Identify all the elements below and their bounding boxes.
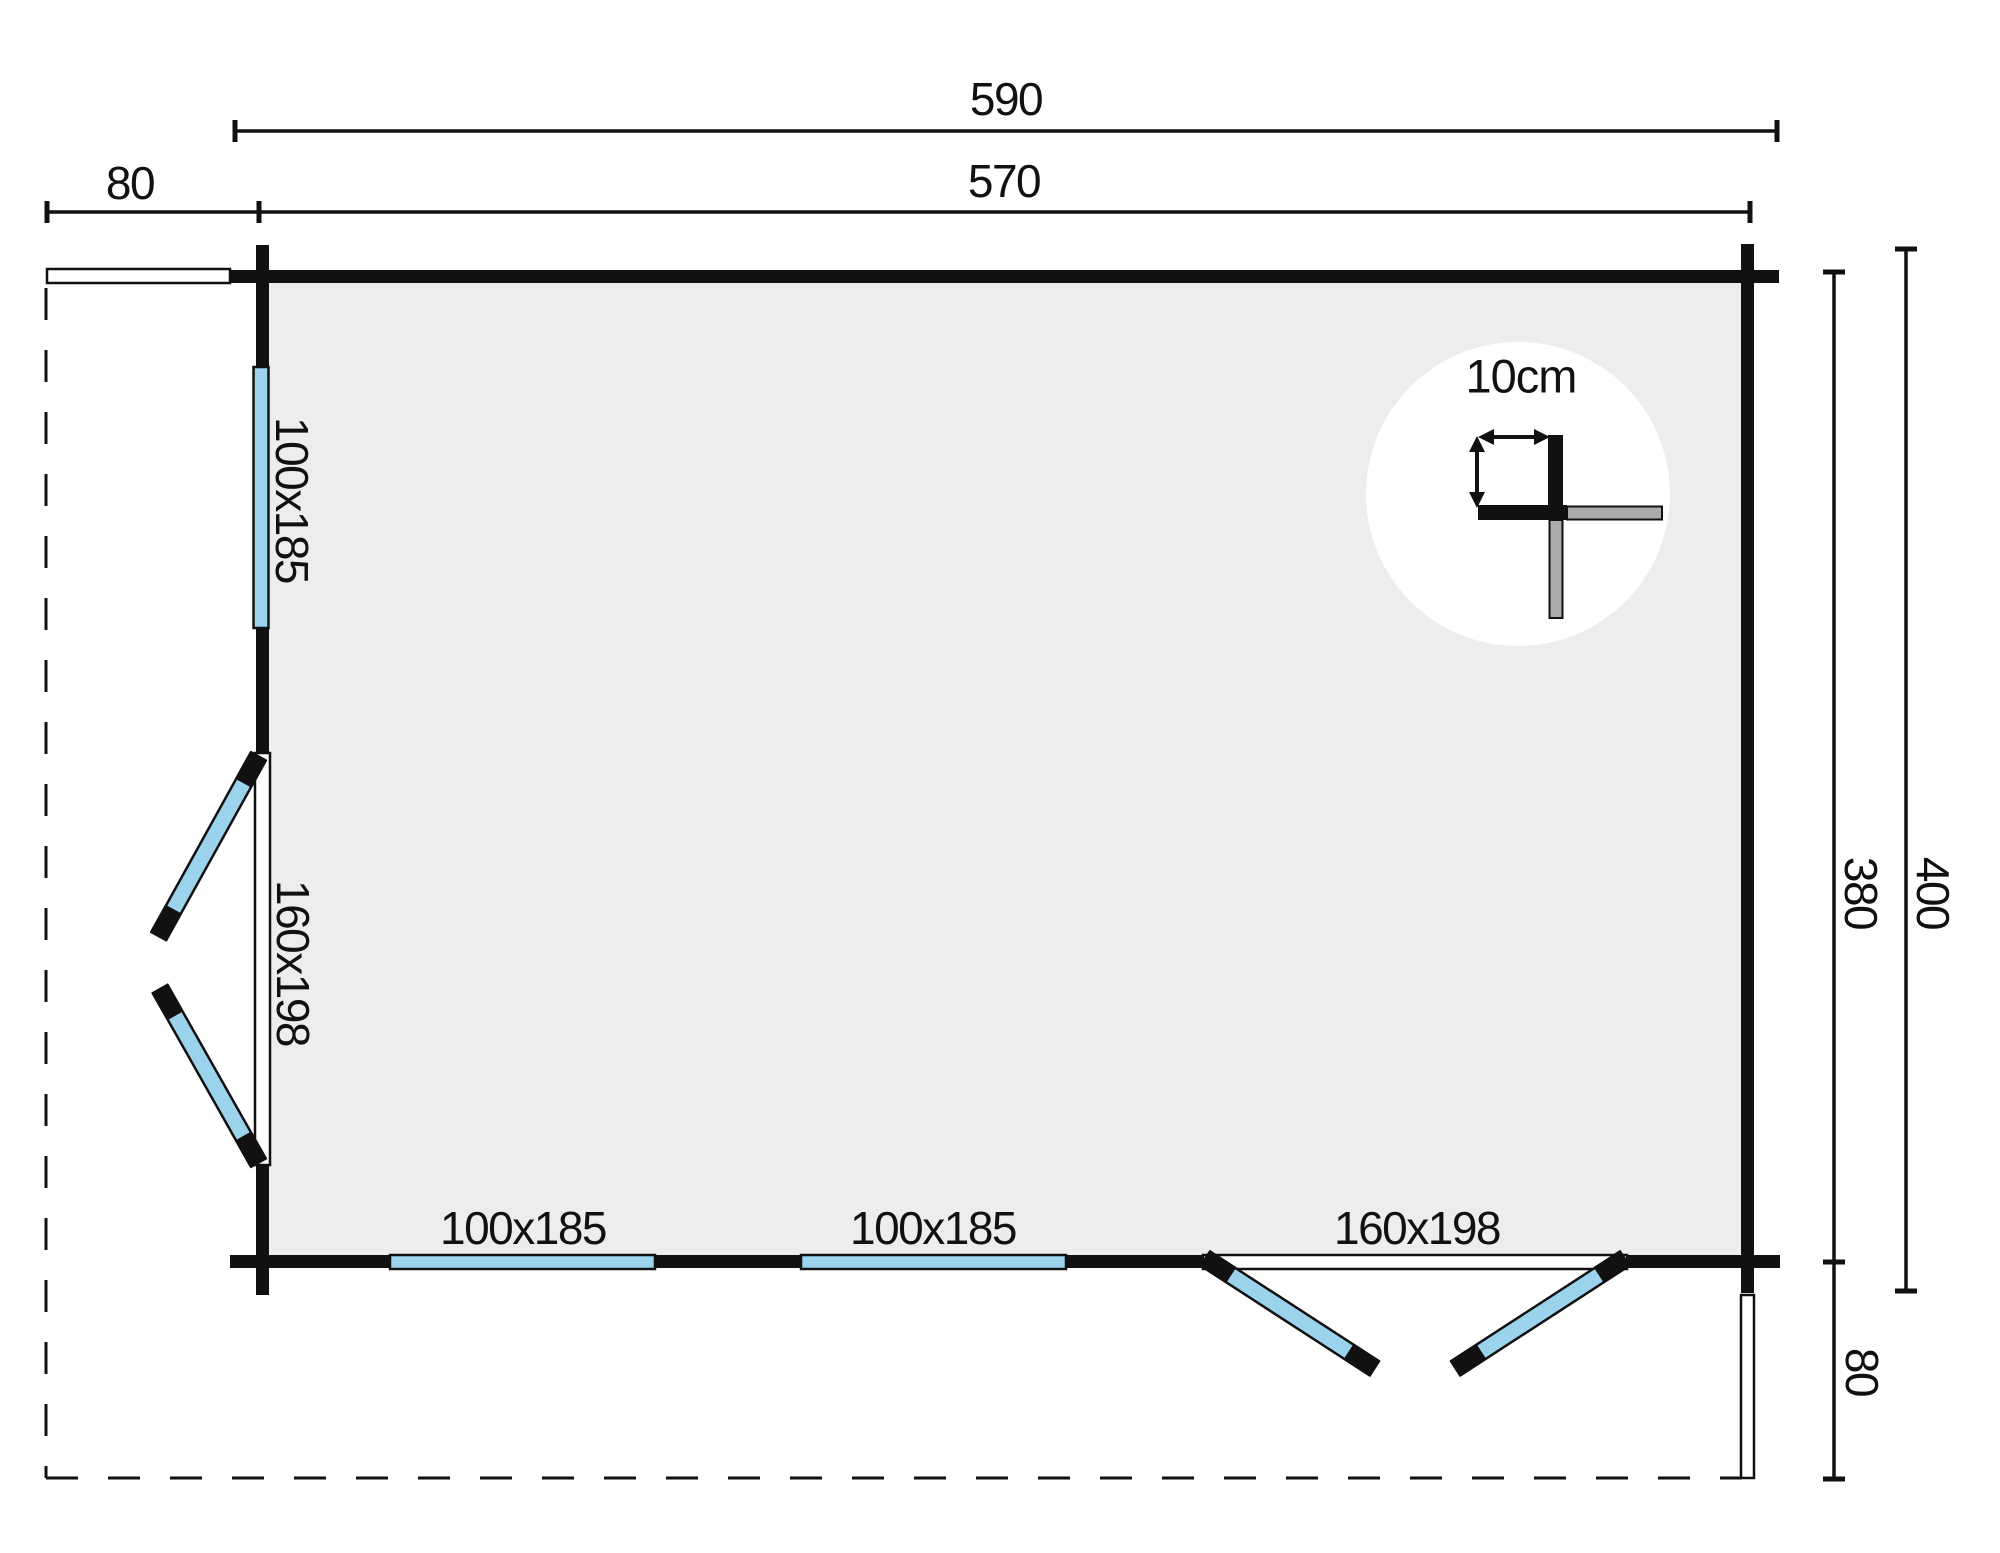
dim-label-inner-width: 570	[968, 158, 1040, 204]
dim-label-overhang-bottom: 80	[1839, 1348, 1885, 1396]
dim-line-inner-width-and-left-overhang	[47, 201, 1750, 223]
left-door-leaf-bottom	[151, 983, 267, 1168]
bottom-window-1-label: 100x185	[440, 1205, 606, 1251]
detail-log-end-bottom	[1550, 520, 1563, 618]
bottom-window-2-glass	[801, 1255, 1066, 1269]
top-wall	[230, 270, 1779, 283]
dim-label-inner-depth: 380	[1838, 857, 1884, 929]
overhang-beam	[47, 269, 230, 283]
bottom-window-2-label: 100x185	[850, 1205, 1016, 1251]
detail-log-end-right	[1567, 507, 1662, 520]
left-window-label: 100x185	[269, 417, 315, 583]
bottom-window-1-glass	[390, 1255, 655, 1269]
left-door-label: 160x198	[270, 880, 316, 1046]
floor-plan-page: 590 570 80 380 400 80 100x185 160x198 10…	[0, 0, 2000, 1553]
detail-wall-horizontal	[1478, 505, 1567, 520]
dim-label-overall-width: 590	[970, 76, 1042, 122]
bottom-door-label: 160x198	[1334, 1205, 1500, 1251]
dim-line-overall-depth	[1895, 249, 1917, 1291]
right-wall	[1741, 244, 1754, 1293]
bottom-door-opening	[1203, 1255, 1627, 1269]
dim-label-overhang-left: 80	[106, 160, 154, 206]
wall-thickness-label: 10cm	[1466, 353, 1577, 400]
floor-plan-drawing	[0, 0, 2000, 1553]
left-door-leaf-top	[150, 751, 267, 942]
overhang-post	[1741, 1295, 1754, 1478]
dim-label-overall-depth: 400	[1910, 857, 1956, 929]
